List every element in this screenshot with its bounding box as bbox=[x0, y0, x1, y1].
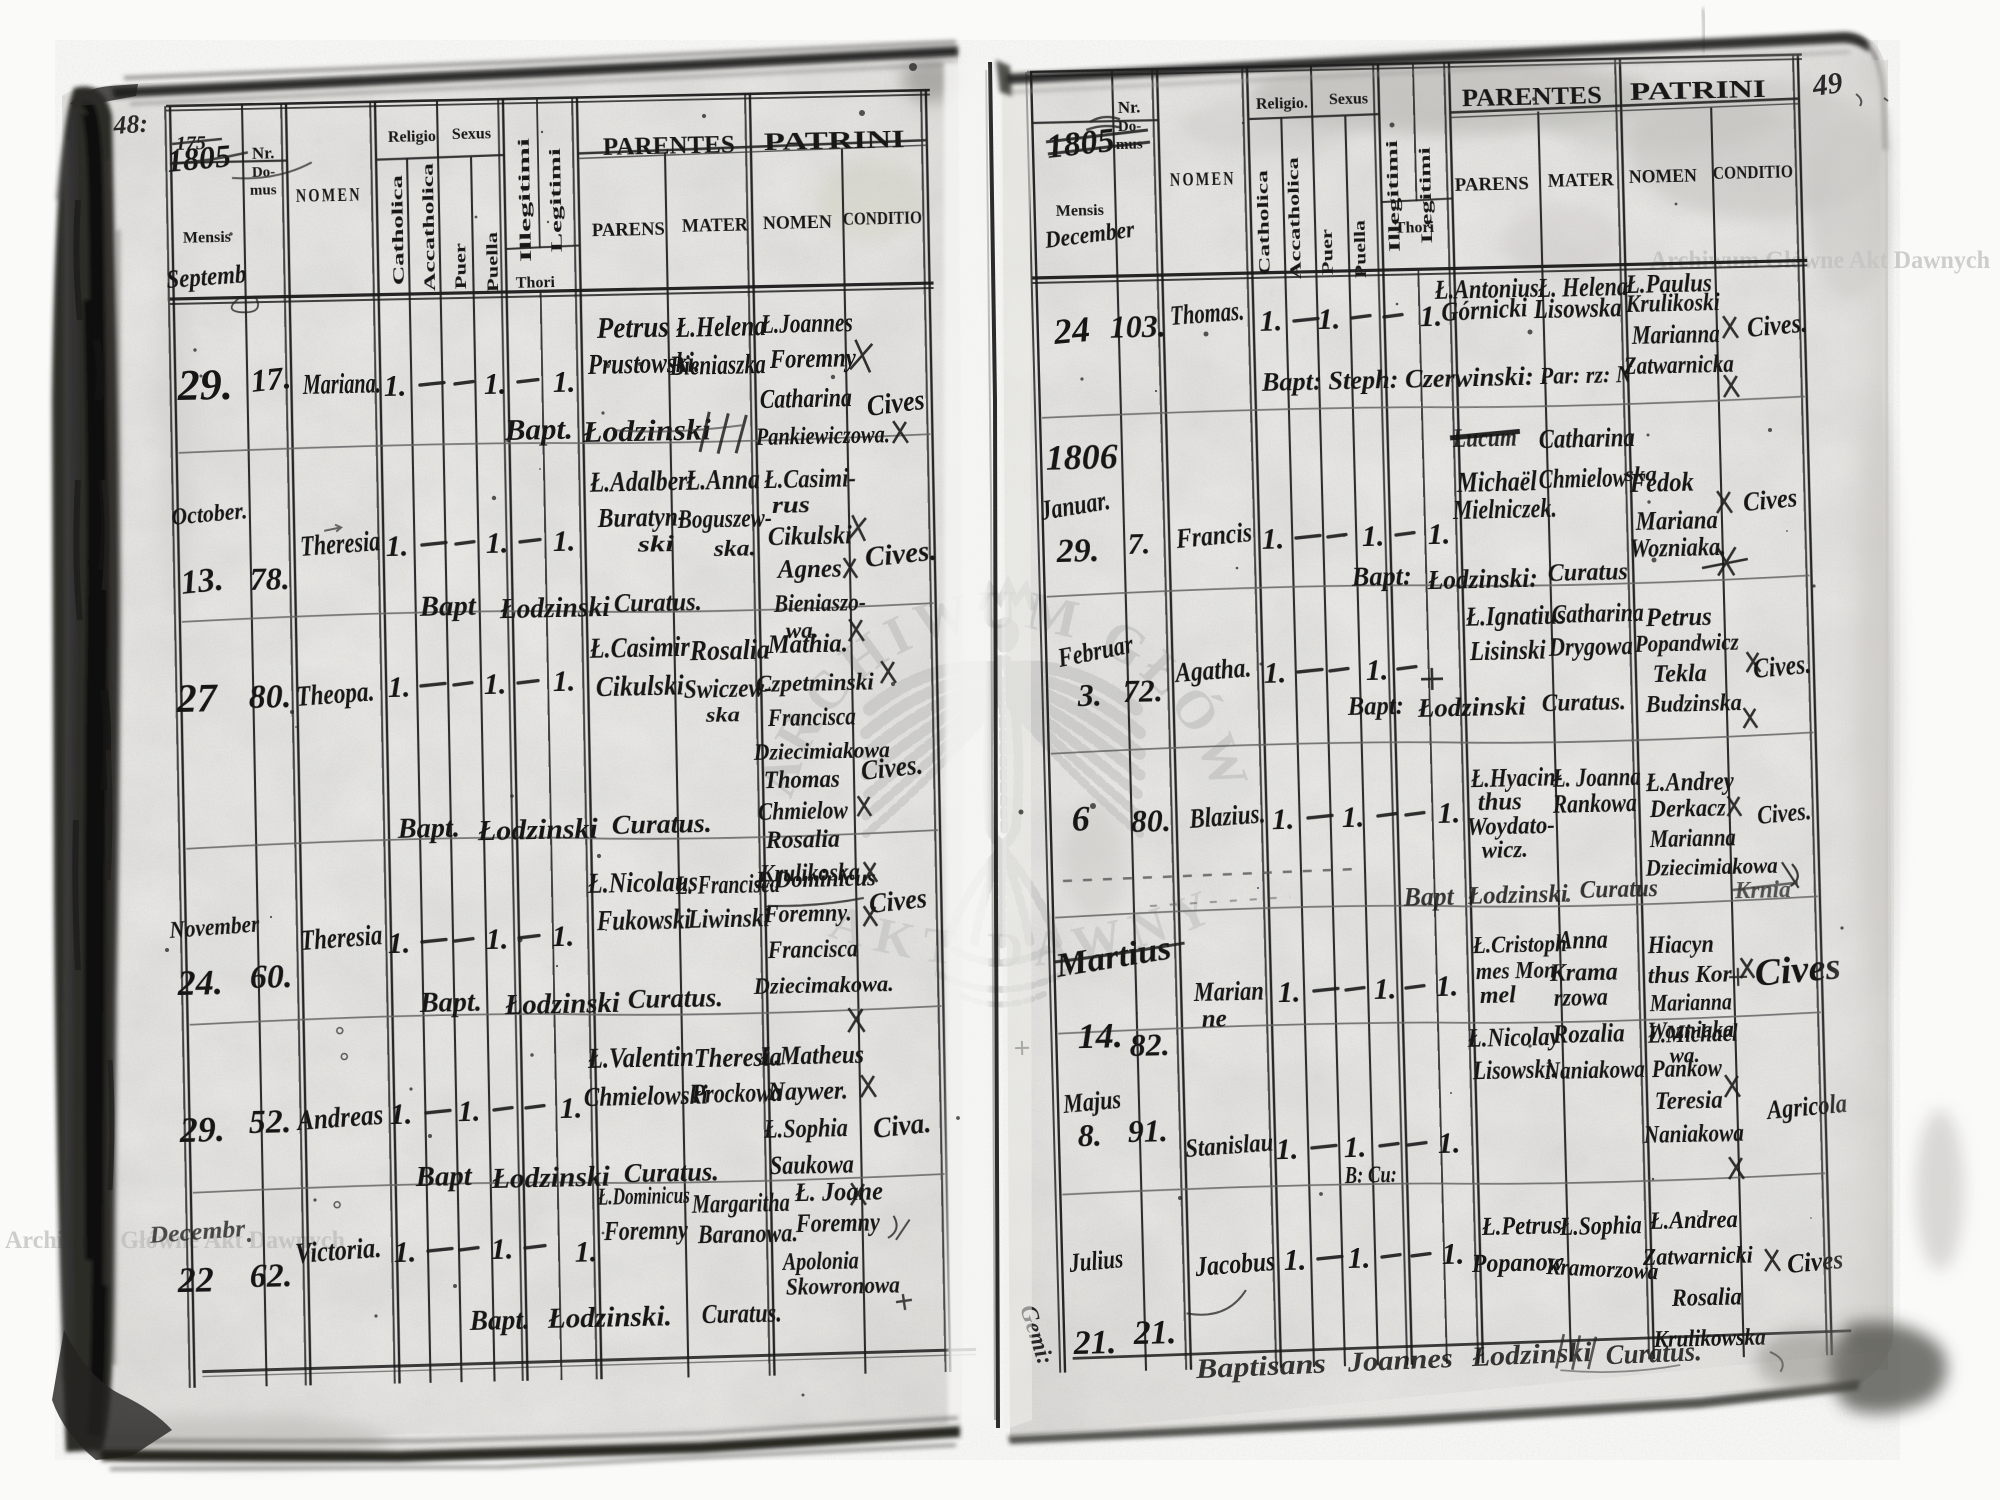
svg-text:Legitimi: Legitimi bbox=[547, 147, 566, 252]
svg-text:21.: 21. bbox=[1072, 1324, 1116, 1362]
svg-text:Łodzinski:: Łodzinski: bbox=[1426, 563, 1538, 596]
svg-text:21.: 21. bbox=[1132, 1314, 1176, 1352]
svg-text:80.: 80. bbox=[1130, 802, 1171, 839]
svg-text:1.: 1. bbox=[389, 1098, 412, 1131]
svg-text:rus: rus bbox=[772, 492, 810, 519]
svg-text:Wozniaka.: Wozniaka. bbox=[1629, 532, 1726, 563]
svg-text:91.: 91. bbox=[1127, 1112, 1168, 1149]
svg-text:Victoria.: Victoria. bbox=[294, 1232, 382, 1270]
svg-text:Ł.Casimi-: Ł.Casimi- bbox=[763, 463, 856, 494]
svg-text:Blazius.: Blazius. bbox=[1187, 798, 1266, 835]
svg-text:Saukowa: Saukowa bbox=[770, 1149, 855, 1180]
svg-text:Julius: Julius bbox=[1067, 1243, 1124, 1278]
svg-text:1.: 1. bbox=[553, 525, 576, 558]
svg-text:Łodzinski: Łodzinski bbox=[1416, 692, 1527, 723]
svg-text:Tekla: Tekla bbox=[1652, 660, 1707, 688]
svg-text:82.: 82. bbox=[1129, 1026, 1170, 1063]
svg-text:Puer: Puer bbox=[1319, 229, 1337, 275]
svg-text:Petrus: Petrus bbox=[596, 311, 670, 346]
svg-text:MATER: MATER bbox=[1548, 170, 1615, 192]
svg-text:49: 49 bbox=[1809, 66, 1844, 103]
svg-text:1.: 1. bbox=[574, 1236, 597, 1269]
svg-text:Curatus.: Curatus. bbox=[1541, 688, 1626, 717]
svg-text:Catharina: Catharina bbox=[760, 382, 853, 414]
svg-text:Catholica: Catholica bbox=[389, 175, 408, 285]
svg-text:PARENS: PARENS bbox=[592, 218, 665, 241]
svg-text:1.: 1. bbox=[1365, 653, 1388, 686]
svg-text:1.: 1. bbox=[490, 1233, 513, 1266]
svg-text:Krnia: Krnia bbox=[1733, 877, 1791, 904]
svg-text:Ł.Andrea: Ł.Andrea bbox=[1649, 1206, 1739, 1235]
svg-text:1.: 1. bbox=[1441, 1237, 1464, 1270]
svg-text:Ł.Sophia: Ł.Sophia bbox=[763, 1113, 848, 1144]
svg-text:Sexus: Sexus bbox=[452, 125, 491, 143]
svg-text:Margaritha: Margaritha bbox=[691, 1188, 790, 1219]
svg-text:rzowa: rzowa bbox=[1553, 984, 1608, 1012]
svg-text:Łodzinski.: Łodzinski. bbox=[547, 1301, 673, 1335]
svg-text:Nr.: Nr. bbox=[252, 144, 275, 163]
svg-text:Foremny.: Foremny. bbox=[763, 899, 852, 928]
svg-text:27: 27 bbox=[175, 675, 219, 721]
svg-text:Chmielow: Chmielow bbox=[1538, 462, 1628, 494]
svg-text:1.: 1. bbox=[458, 1095, 481, 1128]
svg-text:ska: ska bbox=[704, 702, 740, 727]
svg-text:1.: 1. bbox=[1437, 796, 1460, 829]
svg-text:1.: 1. bbox=[1317, 302, 1340, 335]
svg-text:mus: mus bbox=[250, 182, 277, 199]
svg-text:Civa.: Civa. bbox=[871, 1107, 932, 1145]
svg-text:1.: 1. bbox=[1261, 522, 1284, 555]
svg-text:Illegitimi: Illegitimi bbox=[1384, 139, 1404, 252]
svg-text:Agatha.: Agatha. bbox=[1172, 652, 1252, 689]
svg-text:Naywer.: Naywer. bbox=[767, 1075, 848, 1106]
svg-text:Baranowa.: Baranowa. bbox=[697, 1218, 798, 1249]
svg-text:Puella: Puella bbox=[484, 232, 502, 292]
svg-text:Foremny: Foremny bbox=[603, 1214, 689, 1246]
svg-text:Boguszew-: Boguszew- bbox=[677, 503, 772, 534]
svg-text:Mensis: Mensis bbox=[183, 229, 231, 247]
svg-text:Łodzinski: Łodzinski bbox=[477, 813, 599, 847]
svg-text:Naniakowa: Naniakowa bbox=[1544, 1056, 1646, 1085]
svg-text:Marian: Marian bbox=[1193, 975, 1265, 1007]
svg-text:Mathia.: Mathia. bbox=[767, 628, 848, 659]
svg-text:Łodzinski: Łodzinski bbox=[1466, 881, 1568, 910]
svg-text:Baptisans: Baptisans bbox=[1194, 1349, 1326, 1386]
svg-text:Theresia: Theresia bbox=[299, 525, 381, 563]
svg-text:Krulikoski: Krulikoski bbox=[1625, 289, 1721, 318]
svg-text:103.: 103. bbox=[1109, 308, 1166, 345]
svg-text:Thomas.: Thomas. bbox=[1169, 296, 1245, 332]
svg-text:1.: 1. bbox=[552, 366, 575, 399]
svg-text:80.: 80. bbox=[248, 678, 291, 716]
svg-text:Rozalia: Rozalia bbox=[1552, 1018, 1626, 1049]
svg-text:1.: 1. bbox=[551, 920, 574, 953]
svg-text:1.: 1. bbox=[1341, 801, 1364, 834]
svg-text:Joannes: Joannes bbox=[1346, 1343, 1453, 1379]
svg-text:Religio.: Religio. bbox=[1256, 95, 1308, 113]
svg-text:Popandwicz: Popandwicz bbox=[1634, 630, 1740, 658]
svg-text:PARENS: PARENS bbox=[1455, 173, 1530, 196]
svg-text:Dziecimakowa.: Dziecimakowa. bbox=[753, 971, 894, 999]
svg-text:1.: 1. bbox=[486, 527, 509, 560]
svg-text:1.: 1. bbox=[1343, 1130, 1366, 1163]
svg-text:1.: 1. bbox=[559, 1091, 582, 1124]
svg-text:Derkacz: Derkacz bbox=[1649, 794, 1727, 823]
svg-text:NOMEN: NOMEN bbox=[1170, 168, 1237, 190]
svg-text:Curatus.: Curatus. bbox=[702, 1297, 783, 1329]
svg-text:Krama: Krama bbox=[1548, 958, 1618, 987]
svg-text:Francisca: Francisca bbox=[767, 703, 856, 732]
svg-text:1.: 1. bbox=[1347, 1242, 1370, 1275]
svg-text:Rosalia: Rosalia bbox=[1671, 1283, 1743, 1312]
svg-text:1.: 1. bbox=[1259, 304, 1282, 337]
svg-text:1.: 1. bbox=[486, 922, 509, 955]
svg-text:Teresia: Teresia bbox=[1654, 1086, 1723, 1115]
svg-text:Theopa.: Theopa. bbox=[295, 675, 375, 713]
svg-text:Par: rz: N: Par: rz: N bbox=[1539, 362, 1634, 390]
svg-text:Pankow: Pankow bbox=[1651, 1054, 1723, 1083]
svg-text:1.: 1. bbox=[1283, 1243, 1306, 1276]
svg-text:Marianna: Marianna bbox=[1649, 989, 1732, 1017]
svg-text:Łodzinski: Łodzinski bbox=[504, 988, 621, 1021]
svg-text:Curatus: Curatus bbox=[1547, 558, 1628, 587]
svg-text:7.: 7. bbox=[1127, 528, 1150, 561]
svg-text:PATRINI: PATRINI bbox=[1629, 76, 1766, 106]
svg-text:Catharina: Catharina bbox=[1551, 598, 1644, 629]
svg-text:MATER: MATER bbox=[682, 215, 749, 237]
svg-text:Łodzinski: Łodzinski bbox=[499, 592, 611, 625]
svg-text:NOMEN: NOMEN bbox=[1629, 165, 1698, 188]
svg-text:Curatus.: Curatus. bbox=[611, 808, 712, 840]
svg-text:1.: 1. bbox=[1437, 1127, 1460, 1160]
svg-text:13.: 13. bbox=[179, 561, 225, 602]
svg-text:1.: 1. bbox=[1275, 1133, 1298, 1166]
svg-text:Bieniaszka: Bieniaszka bbox=[669, 349, 766, 382]
svg-text:Marianna: Marianna bbox=[1649, 824, 1737, 853]
svg-text:17.: 17. bbox=[249, 359, 293, 399]
svg-text:Mielniczek.: Mielniczek. bbox=[1452, 493, 1558, 525]
svg-text:Rankowa: Rankowa bbox=[1552, 788, 1638, 819]
svg-text:24: 24 bbox=[1051, 309, 1092, 352]
svg-text:1.: 1. bbox=[1427, 518, 1450, 551]
svg-text:29.: 29. bbox=[1055, 532, 1099, 570]
svg-text:Ł.Cristoph: Ł.Cristoph bbox=[1472, 931, 1568, 959]
svg-text:Bapt: Bapt bbox=[419, 591, 478, 623]
svg-text:thus Kor: thus Kor bbox=[1647, 961, 1732, 989]
svg-text:Buratyn-: Buratyn- bbox=[597, 501, 686, 533]
svg-text:Rosalia: Rosalia bbox=[765, 825, 840, 854]
svg-text:mel: mel bbox=[1479, 982, 1516, 1009]
svg-text:Ł.Helena: Ł.Helena bbox=[675, 310, 766, 344]
svg-text:ska.: ska. bbox=[713, 535, 757, 561]
svg-text:Petrus: Petrus bbox=[1644, 602, 1712, 633]
svg-text:Catharina: Catharina bbox=[1538, 422, 1635, 454]
svg-text:wicz.: wicz. bbox=[1482, 837, 1529, 864]
svg-text:Ł.Joannes: Ł.Joannes bbox=[760, 307, 853, 339]
svg-text:Ł. Joane: Ł. Joane bbox=[794, 1176, 883, 1207]
svg-text:3.: 3. bbox=[1076, 676, 1102, 713]
svg-text:Pankiewiczowa.: Pankiewiczowa. bbox=[755, 421, 890, 451]
svg-text:ne: ne bbox=[1201, 1005, 1227, 1033]
svg-text:Accatholica: Accatholica bbox=[1285, 157, 1305, 279]
svg-text:Majus: Majus bbox=[1061, 1084, 1122, 1119]
svg-text:Naniakowa: Naniakowa bbox=[1643, 1120, 1745, 1149]
svg-text:1.: 1. bbox=[1361, 520, 1384, 553]
svg-text:Lisinski: Lisinski bbox=[1469, 634, 1547, 666]
svg-text:Francisca: Francisca bbox=[767, 935, 858, 964]
svg-text:24.: 24. bbox=[176, 962, 223, 1003]
svg-text:PARENTES: PARENTES bbox=[603, 131, 735, 161]
svg-text:72.: 72. bbox=[1122, 672, 1163, 709]
svg-text:Cives.: Cives. bbox=[1756, 796, 1813, 830]
svg-text:CONDITIO: CONDITIO bbox=[843, 207, 922, 229]
svg-text:Chmielow: Chmielow bbox=[758, 797, 849, 826]
svg-text:29.: 29. bbox=[176, 360, 233, 410]
svg-text:62.: 62. bbox=[249, 1257, 292, 1295]
svg-text:Fedok: Fedok bbox=[1628, 467, 1694, 498]
svg-text:Ł.Adalbert: Ł.Adalbert bbox=[589, 466, 695, 499]
svg-text:Skowronowa: Skowronowa bbox=[786, 1273, 900, 1301]
svg-text:Curatus.: Curatus. bbox=[628, 982, 724, 1014]
svg-text:Bapt: Steph: Czerwinski:: Bapt: Steph: Czerwinski: bbox=[1260, 362, 1534, 397]
svg-text:Bapt.: Bapt. bbox=[397, 813, 461, 845]
svg-text:Cives.: Cives. bbox=[859, 749, 924, 787]
svg-text:Lisowska: Lisowska bbox=[1533, 292, 1623, 324]
svg-text:Ł.Nicolay: Ł.Nicolay bbox=[1466, 1022, 1560, 1053]
svg-text:thus: thus bbox=[1477, 788, 1522, 816]
svg-text:6: 6 bbox=[1071, 799, 1090, 839]
svg-text:Kramorzowa: Kramorzowa bbox=[1545, 1254, 1659, 1285]
svg-text:Chmielowski: Chmielowski bbox=[584, 1079, 709, 1112]
svg-text:Ł.Dominicus: Ł.Dominicus bbox=[755, 865, 876, 894]
svg-text:Thori: Thori bbox=[516, 274, 556, 292]
svg-text:1.: 1. bbox=[1263, 656, 1286, 689]
svg-text:1806: 1806 bbox=[1045, 436, 1118, 478]
svg-text:Accatholica: Accatholica bbox=[420, 163, 439, 291]
svg-text:Cikulski: Cikulski bbox=[768, 520, 853, 551]
svg-text:1.: 1. bbox=[384, 370, 407, 403]
svg-text:Rosalia: Rosalia bbox=[689, 634, 770, 667]
svg-text:Fukowski: Fukowski bbox=[596, 904, 692, 937]
svg-text:1.: 1. bbox=[387, 670, 410, 703]
svg-text:Catholica: Catholica bbox=[1254, 170, 1274, 275]
svg-text:Mariana.: Mariana. bbox=[302, 367, 381, 401]
svg-text:1.: 1. bbox=[394, 1235, 417, 1268]
svg-text:Zatwarnicka: Zatwarnicka bbox=[1623, 351, 1735, 381]
svg-text:NOMEN: NOMEN bbox=[763, 212, 833, 234]
svg-text:Theresia: Theresia bbox=[299, 919, 383, 957]
svg-text:Thomas: Thomas bbox=[764, 765, 841, 794]
svg-text:Budzinska: Budzinska bbox=[1645, 690, 1743, 718]
svg-text:48:: 48: bbox=[111, 109, 149, 140]
svg-text:1.: 1. bbox=[1373, 972, 1396, 1005]
svg-text:PARENTES: PARENTES bbox=[1461, 82, 1602, 112]
svg-text:1.: 1. bbox=[385, 530, 408, 563]
svg-text:1.: 1. bbox=[1435, 970, 1458, 1003]
svg-text:Bapt:: Bapt: bbox=[1350, 561, 1412, 592]
svg-text:Ł.Casimir: Ł.Casimir bbox=[589, 632, 691, 665]
svg-text:Czpetminski: Czpetminski bbox=[756, 669, 875, 697]
svg-text:8.: 8. bbox=[1077, 1116, 1102, 1153]
svg-text:Jacobus: Jacobus bbox=[1193, 1246, 1276, 1283]
svg-text:1.: 1. bbox=[483, 368, 506, 401]
svg-text:Cikulski: Cikulski bbox=[596, 670, 685, 703]
svg-text:Anna: Anna bbox=[1556, 925, 1608, 955]
svg-text:60.: 60. bbox=[249, 958, 292, 996]
svg-text:Bapt.: Bapt. bbox=[469, 1305, 531, 1337]
svg-text:Cives.: Cives. bbox=[1746, 308, 1809, 344]
svg-text:1.: 1. bbox=[1277, 976, 1300, 1009]
svg-text:Cives: Cives bbox=[867, 883, 928, 920]
svg-text:PATRINI: PATRINI bbox=[764, 126, 905, 156]
svg-text:Ł.Matheus: Ł.Matheus bbox=[759, 1040, 864, 1071]
svg-text:Łodzinski: Łodzinski bbox=[491, 1162, 611, 1195]
svg-text:Puella: Puella bbox=[1351, 220, 1370, 278]
svg-text:Górnicki: Górnicki bbox=[1440, 292, 1528, 327]
svg-text:22: 22 bbox=[176, 1259, 214, 1300]
svg-text:Agnes: Agnes bbox=[776, 554, 842, 584]
svg-text:Bieniaszo-: Bieniaszo- bbox=[773, 589, 866, 618]
svg-text:Ł.Michael: Ł.Michael bbox=[1647, 1020, 1739, 1049]
svg-text:Ł.Valentin: Ł.Valentin bbox=[587, 1042, 694, 1075]
svg-text:Bapt: Bapt bbox=[1402, 882, 1454, 912]
svg-text:Bapt: Bapt bbox=[414, 1161, 473, 1193]
svg-text:Ł.Sophia: Ł.Sophia bbox=[1559, 1210, 1643, 1241]
svg-text:Ł.Dominicus: Ł.Dominicus bbox=[597, 1183, 690, 1211]
svg-text:Bapt:: Bapt: bbox=[1346, 691, 1404, 721]
svg-text:Nr.: Nr. bbox=[1118, 98, 1141, 118]
svg-text:Apolonia: Apolonia bbox=[781, 1247, 859, 1276]
svg-text:Liwinski: Liwinski bbox=[687, 903, 771, 934]
svg-text:Bapt.: Bapt. bbox=[419, 987, 483, 1019]
svg-text:Religio: Religio bbox=[388, 128, 436, 146]
svg-text:Marianna: Marianna bbox=[1631, 319, 1721, 350]
svg-text:B: Cu:: B: Cu: bbox=[1344, 1162, 1397, 1189]
svg-text:Legitimi: Legitimi bbox=[1416, 146, 1436, 243]
svg-text:29.: 29. bbox=[178, 1109, 225, 1150]
svg-text:Illegitimi: Illegitimi bbox=[516, 137, 535, 262]
svg-text:Ł.Andrey: Ł.Andrey bbox=[1645, 766, 1735, 797]
svg-text:Mensis: Mensis bbox=[1056, 202, 1104, 220]
svg-text:Andreas: Andreas bbox=[294, 1099, 384, 1137]
svg-text:Cives.: Cives. bbox=[1752, 649, 1813, 685]
svg-text:1.: 1. bbox=[388, 927, 411, 960]
svg-text:Sexus: Sexus bbox=[1329, 90, 1369, 108]
svg-text:Puer: Puer bbox=[452, 243, 470, 289]
svg-text:mes Mon: mes Mon bbox=[1475, 957, 1556, 985]
svg-text:1805: 1805 bbox=[1045, 122, 1117, 166]
svg-text:CONDITIO: CONDITIO bbox=[1713, 161, 1794, 183]
svg-text:Septemb: Septemb bbox=[165, 259, 247, 294]
svg-text:Curatus.: Curatus. bbox=[1605, 1336, 1702, 1371]
svg-text:Zatwarnicki: Zatwarnicki bbox=[1642, 1243, 1754, 1272]
svg-text:Curatus: Curatus bbox=[1579, 875, 1658, 904]
svg-text:14.: 14. bbox=[1077, 1015, 1123, 1056]
svg-text:Łodzinski: Łodzinski bbox=[1470, 1337, 1593, 1373]
svg-text:52.: 52. bbox=[248, 1103, 291, 1141]
svg-text:ski: ski bbox=[636, 531, 675, 557]
svg-text:1.: 1. bbox=[553, 665, 576, 698]
svg-text:Drygowa: Drygowa bbox=[1547, 631, 1633, 662]
svg-text:1.: 1. bbox=[484, 667, 507, 700]
svg-text:Hiacyn: Hiacyn bbox=[1647, 931, 1715, 960]
svg-text:Foremny: Foremny bbox=[769, 342, 857, 374]
svg-text:Ł.Anna: Ł.Anna bbox=[685, 464, 760, 497]
svg-text:Cives: Cives bbox=[1742, 482, 1799, 517]
svg-text:NOMEN: NOMEN bbox=[296, 185, 362, 207]
svg-text:Foremny: Foremny bbox=[795, 1207, 881, 1238]
svg-text:Bapt.: Bapt. bbox=[503, 413, 573, 447]
svg-text:1.: 1. bbox=[1271, 803, 1294, 836]
svg-text:78.: 78. bbox=[249, 560, 290, 597]
svg-text:Curatus.: Curatus. bbox=[614, 587, 703, 618]
svg-text:Ł.Petrus: Ł.Petrus bbox=[1481, 1210, 1563, 1241]
